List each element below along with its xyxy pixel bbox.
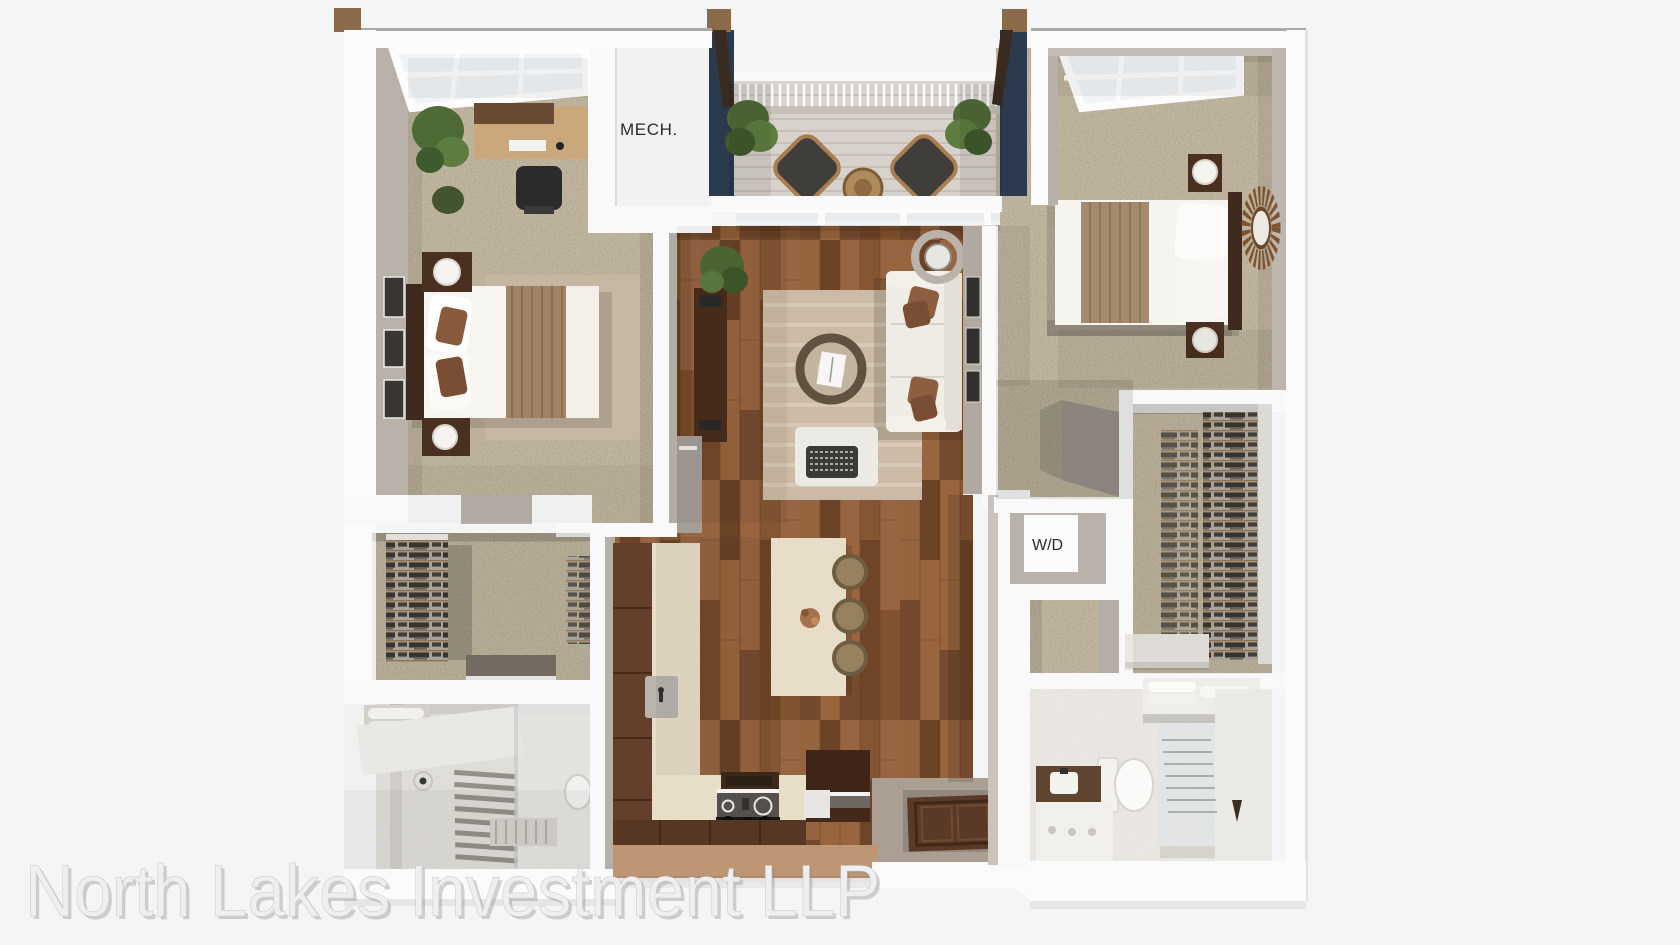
- svg-text:W/D: W/D: [1032, 537, 1063, 554]
- svg-text:North Lakes Investment LLP: North Lakes Investment LLP: [25, 850, 880, 932]
- svg-text:MECH.: MECH.: [620, 120, 678, 139]
